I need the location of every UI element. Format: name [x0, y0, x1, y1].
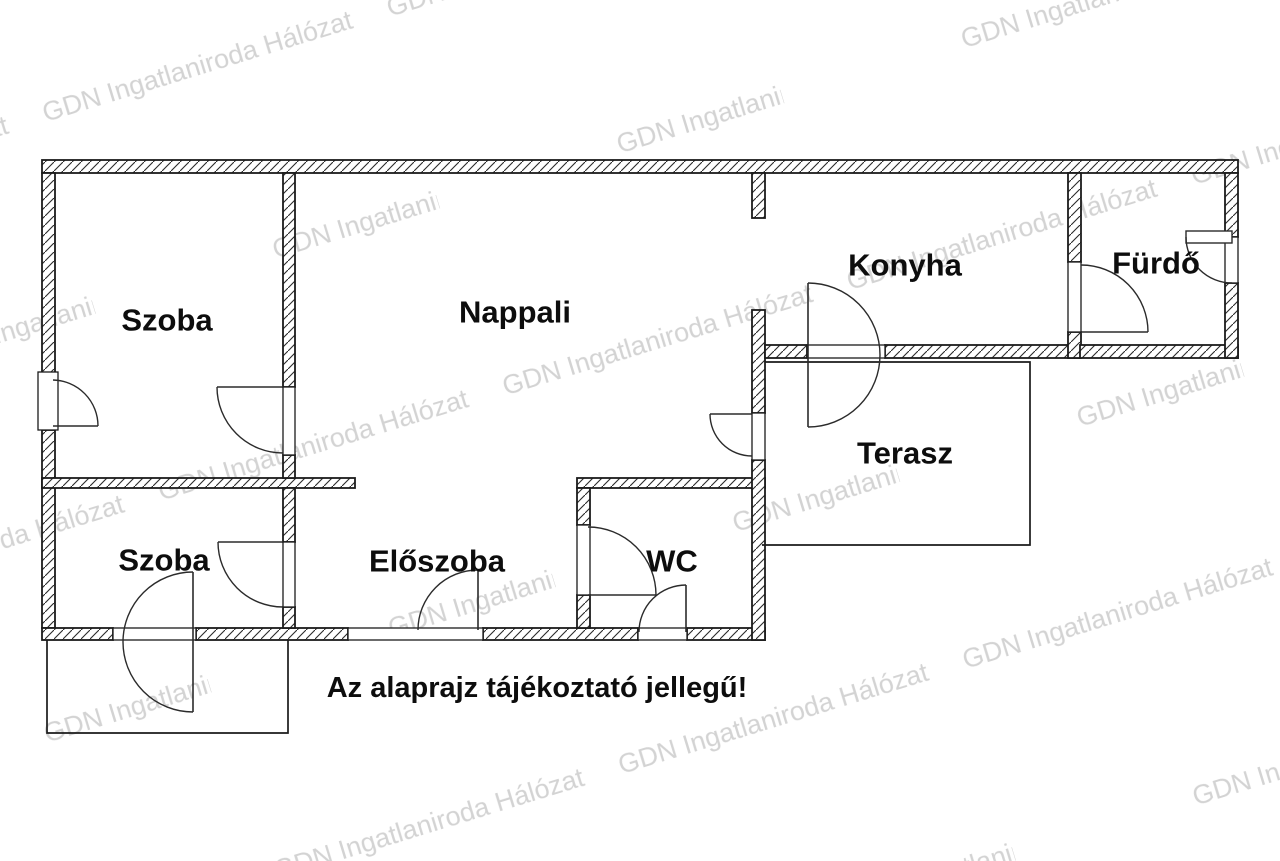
- door-opening-wc-left: [577, 525, 590, 595]
- room-label-eloszoba: Előszoba: [369, 544, 506, 579]
- door-opening-furdo-right: [1225, 237, 1238, 283]
- door-opening-terasz: [752, 413, 765, 460]
- wall-konyha-bottom-2: [885, 345, 1080, 358]
- wall-right-vert-1: [752, 173, 765, 218]
- wall-right-vert-2: [752, 310, 765, 413]
- wall-mid-horizontal: [42, 478, 355, 488]
- wall-wc-top: [577, 478, 765, 488]
- room-label-terasz: Terasz: [857, 436, 953, 471]
- room-label-szoba-bottom: Szoba: [118, 543, 210, 578]
- room-label-nappali: Nappali: [459, 295, 571, 330]
- door-leaf-furdo-right: [1186, 231, 1232, 243]
- door-opening-szoba-top: [283, 387, 295, 455]
- room-label-furdo: Fürdő: [1112, 246, 1200, 281]
- wall-left-upper: [42, 173, 55, 373]
- wall-right-vert-3: [752, 460, 765, 640]
- wall-leftrooms-vert-2: [283, 455, 295, 478]
- wall-top: [42, 160, 1238, 173]
- wall-bottom-3: [483, 628, 638, 640]
- watermark-layer: [0, 0, 1280, 861]
- door-opening-konyha-terasz: [807, 345, 885, 358]
- wall-konyha-furdo-divider-1: [1068, 173, 1081, 262]
- wall-leftrooms-vert-1: [283, 173, 295, 387]
- wall-furdo-right-2: [1225, 283, 1238, 358]
- room-label-konyha: Konyha: [848, 248, 962, 283]
- floor-plan-drawing: GDN Ingatlaniroda Hálózat GDN Ingatlanir…: [0, 0, 1280, 861]
- door-opening-balcony: [113, 628, 196, 640]
- wall-wc-left-1: [577, 488, 590, 525]
- door-opening-furdo-left: [1068, 262, 1081, 332]
- wall-konyha-bottom-1: [765, 345, 807, 358]
- wall-leftrooms-vert-4: [283, 607, 295, 628]
- wall-furdo-bottom: [1080, 345, 1238, 358]
- door-opening-wc-bottom: [638, 628, 687, 640]
- wall-bottom-2: [196, 628, 348, 640]
- wall-bottom-1: [42, 628, 113, 640]
- wall-wc-left-2: [577, 595, 590, 628]
- disclaimer-note: Az alaprajz tájékoztató jellegű!: [327, 672, 748, 704]
- wall-konyha-furdo-divider-2: [1068, 332, 1081, 358]
- room-label-wc: WC: [646, 544, 698, 579]
- door-opening-szoba-bottom: [283, 542, 295, 607]
- entrance-opening: [348, 628, 483, 640]
- wall-leftrooms-vert-3: [283, 488, 295, 542]
- wall-left-lower: [42, 430, 55, 628]
- room-label-szoba-top: Szoba: [121, 303, 213, 338]
- wall-furdo-right-1: [1225, 173, 1238, 237]
- floor-plan-page: GDN Ingatlaniroda Hálózat GDN Ingatlanir…: [0, 0, 1280, 861]
